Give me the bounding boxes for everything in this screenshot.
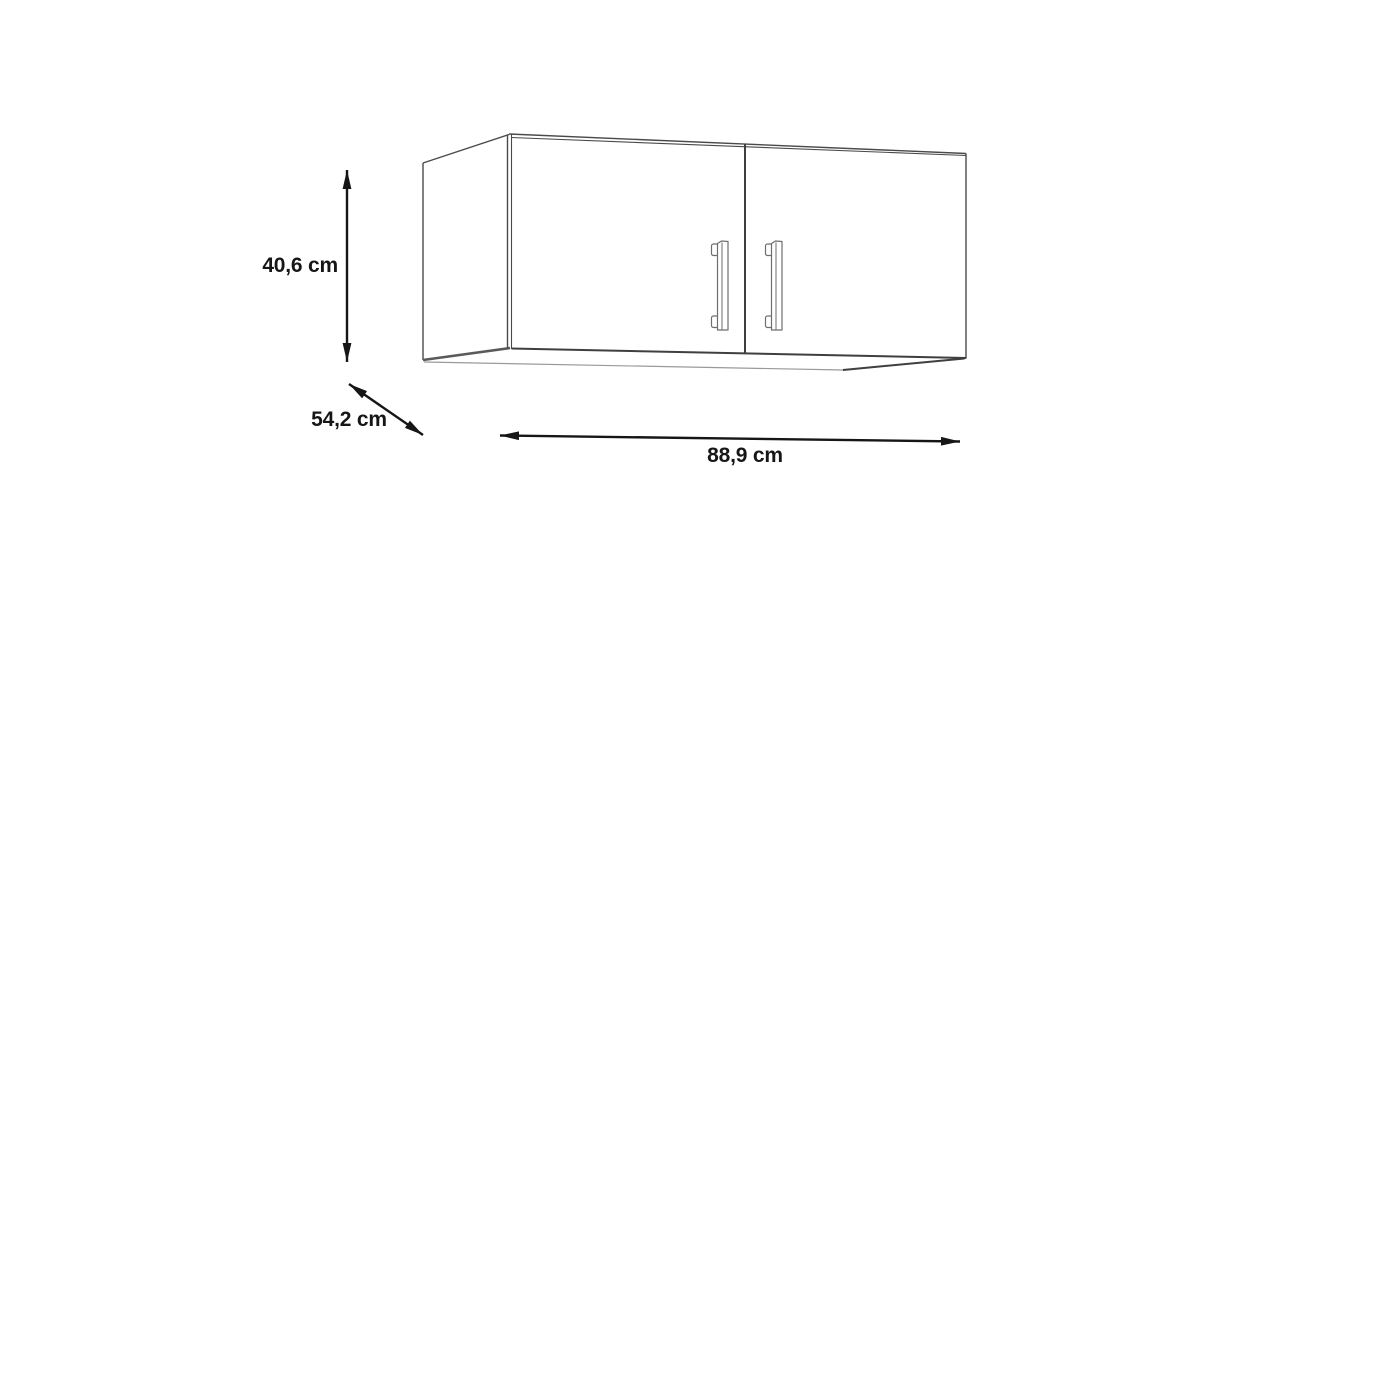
cabinet-dimension-diagram: 40,6 cm 54,2 cm 88,9 cm [0,0,1400,1400]
height-label: 40,6 cm [262,254,338,277]
left-side-panel [423,135,509,361]
width-dimension: 88,9 cm [500,436,960,468]
height-dimension: 40,6 cm [262,170,347,362]
depth-dimension: 54,2 cm [311,384,423,435]
cabinet-drawing [423,134,966,370]
handle-bar [718,241,729,330]
handle-bar [772,241,783,330]
left-door [512,135,746,354]
width-label: 88,9 cm [707,444,783,467]
depth-label: 54,2 cm [311,408,387,431]
width-arrow [500,436,960,442]
diagram-canvas: 40,6 cm 54,2 cm 88,9 cm [0,0,1400,1400]
